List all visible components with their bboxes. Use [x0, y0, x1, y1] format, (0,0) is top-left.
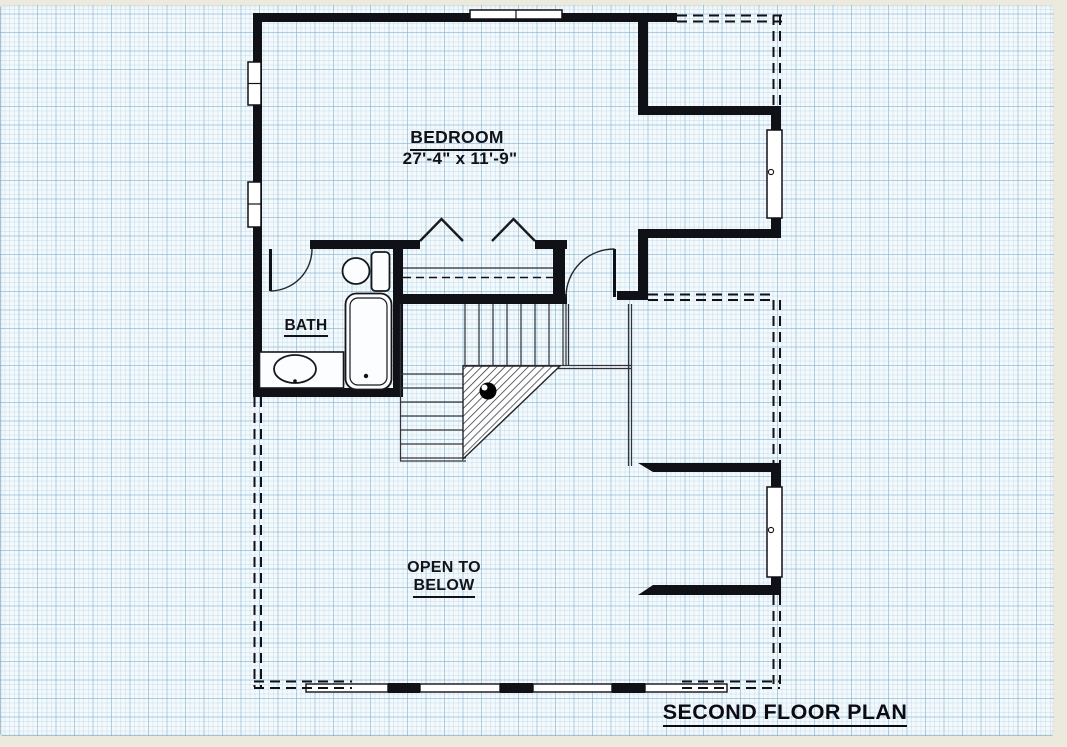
bath-door-swing-arc: [271, 249, 313, 291]
sink-basin: [274, 355, 316, 383]
wall-bottom-seg3: [612, 683, 645, 693]
window-mullion-tick: [768, 527, 773, 532]
closet: [403, 219, 553, 278]
stair-treads-upper-flight: [465, 304, 569, 366]
bedroom-dimensions: 27'-4" x 11'-9": [385, 149, 535, 168]
stair-treads-lower-flight: [400, 374, 466, 461]
plan-title: SECOND FLOOR PLAN: [655, 700, 915, 727]
window-symbol-bottom-3: [533, 684, 612, 692]
sink-drain: [293, 379, 297, 383]
bifold-door-symbol-1: [420, 219, 463, 241]
bathtub-drain: [364, 374, 368, 378]
bifold-door-symbol-2: [492, 219, 535, 241]
bathtub-inner: [350, 298, 387, 385]
window-mullion-tick: [768, 169, 773, 174]
wall-landing-right-vertical: [638, 229, 648, 300]
open-to-below-hatch-triangle: [463, 366, 560, 459]
wall-bedroom-south-left: [310, 240, 420, 249]
newel-post-dot: [480, 383, 497, 400]
wall-top-right-vertical: [638, 13, 648, 111]
open-to-below-label: OPEN TO BELOW: [384, 559, 504, 598]
window-symbol-bottom-2: [420, 684, 500, 692]
toilet-tank: [372, 252, 390, 291]
bedroom-door-swing-arc: [566, 249, 615, 297]
wall-closet-right: [553, 240, 565, 300]
wall-wing2-north: [638, 463, 780, 472]
floor-plan-drawing: [0, 0, 1067, 747]
wall-bottom-seg1: [388, 683, 420, 693]
wall-landing-door-jamb: [617, 291, 648, 300]
toilet-bowl: [343, 258, 370, 284]
wall-wing2-south: [638, 585, 780, 595]
wall-wing1-south: [640, 229, 780, 238]
bedroom-label: BEDROOM: [392, 128, 522, 151]
wall-wing1-north: [638, 106, 780, 115]
wall-stair-head: [393, 294, 567, 304]
newel-post-highlight: [482, 385, 488, 391]
wall-bottom-seg2: [500, 683, 533, 693]
bath-label: BATH: [266, 317, 346, 337]
staircase: [400, 304, 632, 466]
wall-top: [255, 13, 677, 22]
